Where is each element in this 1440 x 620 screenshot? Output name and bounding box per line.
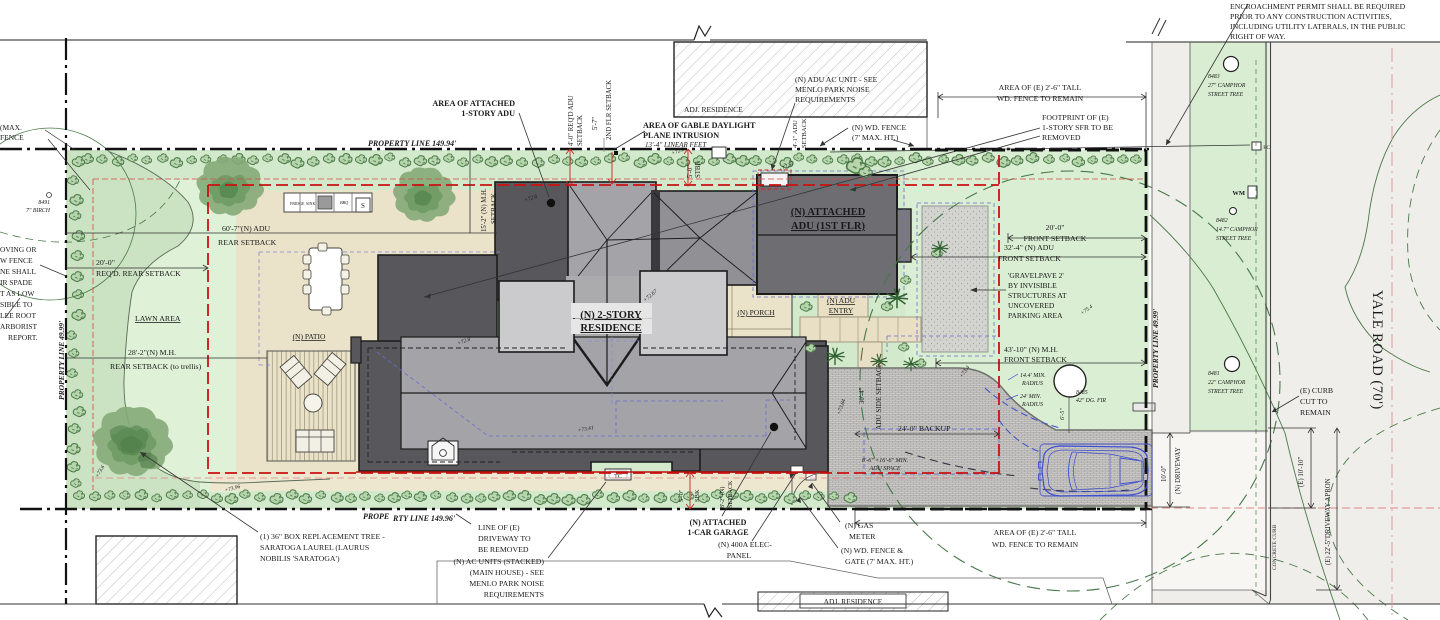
- svg-text:LEE ROOT: LEE ROOT: [0, 311, 36, 320]
- svg-text:RESIDENCE: RESIDENCE: [580, 323, 641, 334]
- svg-text:6'-5": 6'-5": [1060, 408, 1066, 420]
- svg-text:METER: METER: [849, 532, 876, 541]
- svg-text:PLANE INTRUSION: PLANE INTRUSION: [643, 131, 719, 140]
- svg-text:(N) ADU: (N) ADU: [827, 296, 856, 305]
- svg-text:4'-0" REQ'D ADU: 4'-0" REQ'D ADU: [568, 95, 575, 146]
- svg-text:(1) 36" BOX REPLACEMENT TREE: (1) 36" BOX REPLACEMENT TREE -: [260, 532, 385, 541]
- svg-text:(N) 2-STORY: (N) 2-STORY: [580, 310, 642, 321]
- svg-text:24'-0" BACKUP: 24'-0" BACKUP: [898, 424, 951, 433]
- svg-text:(N) ATTACHED: (N) ATTACHED: [791, 207, 866, 218]
- svg-text:SETBACK: SETBACK: [728, 480, 734, 508]
- svg-text:REMOVED: REMOVED: [1042, 133, 1081, 142]
- svg-text:1-STORY SFR TO BE: 1-STORY SFR TO BE: [1042, 123, 1113, 132]
- svg-text:PROPERTY LINE 49.99': PROPERTY LINE 49.99': [1151, 309, 1160, 388]
- svg-text:T AS LOW: T AS LOW: [0, 289, 35, 298]
- svg-text:MENLO PARK NOISE: MENLO PARK NOISE: [795, 85, 870, 94]
- svg-text:(MAX.: (MAX.: [0, 123, 22, 132]
- svg-text:GATE (7' MAX. HT.): GATE (7' MAX. HT.): [845, 557, 914, 566]
- svg-text:8'-6" ×16'-6" MIN.: 8'-6" ×16'-6" MIN.: [862, 458, 908, 464]
- svg-text:(N) DRIVEWAY: (N) DRIVEWAY: [1175, 447, 1182, 494]
- svg-text:BY INVISIBLE: BY INVISIBLE: [1008, 281, 1057, 290]
- svg-text:(N) PORCH: (N) PORCH: [737, 308, 775, 317]
- svg-text:AREA OF ATTACHED: AREA OF ATTACHED: [432, 99, 515, 108]
- svg-text:ADU SPACE: ADU SPACE: [868, 466, 900, 472]
- svg-text:RADIUS: RADIUS: [1021, 402, 1043, 408]
- svg-text:(N) GAS: (N) GAS: [845, 521, 873, 530]
- svg-text:27" CAMPHOR: 27" CAMPHOR: [1208, 83, 1246, 89]
- svg-text:STBR: STBR: [695, 161, 702, 178]
- svg-text:42" DG. FIR: 42" DG. FIR: [1076, 397, 1106, 404]
- svg-text:ARBORIST: ARBORIST: [0, 322, 38, 331]
- svg-text:SETBACK: SETBACK: [491, 193, 498, 224]
- svg-text:24' MIN.: 24' MIN.: [1020, 393, 1041, 400]
- svg-text:PRIOR TO ANY CONSTRUCTION ACTI: PRIOR TO ANY CONSTRUCTION ACTIVITIES,: [1230, 12, 1392, 21]
- svg-text:WD. FENCE TO REMAIN: WD. FENCE TO REMAIN: [997, 94, 1084, 103]
- svg-text:28'-2"(N) M.H.: 28'-2"(N) M.H.: [128, 348, 176, 357]
- svg-text:REMAIN: REMAIN: [1300, 408, 1331, 417]
- svg-text:PANEL: PANEL: [727, 551, 752, 560]
- svg-text:REQ'D. REAR SETBACK: REQ'D. REAR SETBACK: [96, 269, 181, 278]
- svg-text:13'-4" LINEAR FEET: 13'-4" LINEAR FEET: [645, 141, 707, 149]
- svg-text:SETBACK: SETBACK: [801, 118, 808, 148]
- svg-text:REQUIREMENTS: REQUIREMENTS: [795, 95, 855, 104]
- svg-text:8482: 8482: [1216, 217, 1228, 224]
- svg-text:REPORT.: REPORT.: [8, 333, 38, 342]
- svg-text:DRIVEWAY TO: DRIVEWAY TO: [478, 534, 531, 543]
- svg-text:(E) 22'-5"DRIVEWAY APRON: (E) 22'-5"DRIVEWAY APRON: [1325, 478, 1332, 565]
- svg-text:ADU SIDE SETBACK: ADU SIDE SETBACK: [875, 361, 883, 430]
- svg-text:1-STORY ADU: 1-STORY ADU: [461, 109, 515, 118]
- svg-text:FRONT SETBACK: FRONT SETBACK: [1004, 355, 1067, 364]
- svg-text:RTY LINE 149.96': RTY LINE 149.96': [392, 514, 456, 523]
- svg-text:14.4' MIN.: 14.4' MIN.: [1020, 372, 1046, 379]
- svg-text:IR SPADE: IR SPADE: [0, 278, 33, 287]
- svg-text:(7' MAX. HT.): (7' MAX. HT.): [852, 133, 899, 142]
- svg-text:30'-4": 30'-4": [859, 387, 866, 404]
- svg-text:FENCE: FENCE: [0, 133, 24, 142]
- svg-text:STREET TREE: STREET TREE: [1216, 236, 1252, 242]
- svg-text:SARATOGA LAUREL (LAURUS: SARATOGA LAUREL (LAURUS: [260, 543, 369, 552]
- svg-text:15'-2" (N) M.H.: 15'-2" (N) M.H.: [481, 188, 488, 232]
- svg-text:AREA OF GABLE DAYLIGHT: AREA OF GABLE DAYLIGHT: [643, 121, 756, 130]
- svg-text:CONCRETE CURB: CONCRETE CURB: [1272, 524, 1278, 570]
- svg-text:ADU (1ST FLR): ADU (1ST FLR): [791, 221, 865, 232]
- svg-text:WM: WM: [1232, 190, 1245, 197]
- svg-text:S: S: [361, 202, 365, 210]
- svg-text:PROPE: PROPE: [363, 512, 389, 521]
- svg-text:LAWN AREA: LAWN AREA: [135, 314, 181, 323]
- svg-text:2ND FLR SETBACK: 2ND FLR SETBACK: [606, 80, 613, 140]
- svg-text:1-CAR GARAGE: 1-CAR GARAGE: [687, 528, 748, 537]
- svg-text:CUT TO: CUT TO: [1300, 397, 1328, 406]
- svg-text:PARKING AREA: PARKING AREA: [1008, 311, 1063, 320]
- svg-text:AREA OF (E) 2'-6" TALL: AREA OF (E) 2'-6" TALL: [994, 528, 1077, 537]
- svg-text:TC: TC: [614, 474, 622, 480]
- svg-text:FOOTPRINT OF (E): FOOTPRINT OF (E): [1042, 113, 1109, 122]
- svg-text:FC: FC: [1263, 145, 1270, 151]
- svg-text:NE SHALL: NE SHALL: [0, 267, 36, 276]
- svg-text:(N) ADU AC UNIT - SEE: (N) ADU AC UNIT - SEE: [795, 75, 878, 84]
- svg-text:PROPERTY LINE 49.99': PROPERTY LINE 49.99': [57, 321, 66, 400]
- svg-text:60'-7"(N) ADU: 60'-7"(N) ADU: [222, 224, 270, 233]
- svg-text:'GRAVELPAVE 2': 'GRAVELPAVE 2': [1008, 271, 1064, 280]
- svg-text:BE REMOVED: BE REMOVED: [478, 545, 529, 554]
- svg-text:STREET TREE: STREET TREE: [1208, 92, 1244, 98]
- svg-text:ENCROACHMENT PERMIT SHALL BE: ENCROACHMENT PERMIT SHALL BE REQUIRED: [1230, 2, 1406, 11]
- svg-text:(N) 400A ELEC-: (N) 400A ELEC-: [718, 540, 772, 549]
- svg-text:W FENCE: W FENCE: [0, 256, 33, 265]
- svg-text:8485: 8485: [1076, 389, 1088, 396]
- svg-text:ADJ. RESIDENCE: ADJ. RESIDENCE: [824, 597, 883, 606]
- svg-text:AREA OF (E) 2'-6" TALL: AREA OF (E) 2'-6" TALL: [999, 83, 1082, 92]
- svg-text:(MAIN HOUSE) - SEE: (MAIN HOUSE) - SEE: [470, 568, 545, 577]
- svg-text:(N) PATIO: (N) PATIO: [293, 332, 326, 341]
- svg-text:INCLUDING UTILITY LATERALS, IN: INCLUDING UTILITY LATERALS, IN THE PUBLI…: [1230, 22, 1405, 31]
- svg-text:REAR SETBACK: REAR SETBACK: [218, 238, 277, 247]
- svg-text:(N) AC UNITS (STACKED): (N) AC UNITS (STACKED): [453, 557, 544, 566]
- svg-text:(E) CURB: (E) CURB: [1300, 386, 1333, 395]
- svg-text:RIGHT OF WAY.: RIGHT OF WAY.: [1230, 32, 1285, 41]
- svg-text:LINE OF (E): LINE OF (E): [478, 523, 520, 532]
- svg-text:10'-0": 10'-0": [1161, 465, 1168, 482]
- svg-text:(N) ATTACHED: (N) ATTACHED: [690, 518, 747, 527]
- svg-text:NOBILIS 'SARATOGA'): NOBILIS 'SARATOGA'): [260, 554, 340, 563]
- svg-text:20'-0": 20'-0": [1046, 223, 1065, 232]
- svg-text:STRUCTURES AT: STRUCTURES AT: [1008, 291, 1067, 300]
- svg-text:REAR SETBACK (to trellis): REAR SETBACK (to trellis): [110, 362, 202, 371]
- svg-text:14.7" CAMPHOR: 14.7" CAMPHOR: [1216, 226, 1258, 233]
- svg-text:PROPERTY LINE 149.94': PROPERTY LINE 149.94': [368, 139, 457, 148]
- svg-text:4'-1" ADU: 4'-1" ADU: [792, 120, 799, 148]
- svg-text:22" CAMPHOR: 22" CAMPHOR: [1208, 380, 1246, 386]
- svg-text:SETBACK: SETBACK: [577, 115, 584, 146]
- svg-text:5'-0": 5'-0": [678, 489, 685, 502]
- svg-text:REQUIREMENTS: REQUIREMENTS: [484, 590, 544, 599]
- svg-text:WD. FENCE TO REMAIN: WD. FENCE TO REMAIN: [992, 540, 1079, 549]
- svg-text:UNCOVERED: UNCOVERED: [1008, 301, 1055, 310]
- svg-text:43'-10" (N) M.H.: 43'-10" (N) M.H.: [1004, 345, 1058, 354]
- svg-text:5'-7": 5'-7": [592, 117, 599, 130]
- svg-text:ENTRY: ENTRY: [829, 306, 854, 315]
- svg-text:OVING OR: OVING OR: [0, 245, 36, 254]
- svg-text:(N) WD. FENCE: (N) WD. FENCE: [852, 123, 906, 132]
- svg-text:STREET TREE: STREET TREE: [1208, 389, 1244, 395]
- svg-text:BBQ: BBQ: [340, 200, 348, 205]
- svg-text:32'-4" (N) ADU: 32'-4" (N) ADU: [1004, 243, 1054, 252]
- svg-text:SIBLE TO: SIBLE TO: [0, 300, 33, 309]
- svg-text:8481: 8481: [1208, 370, 1220, 377]
- svg-text:FRONT SETBACK: FRONT SETBACK: [998, 254, 1061, 263]
- svg-text:5'-0": 5'-0": [687, 165, 694, 178]
- svg-text:FRIDGE: FRIDGE: [290, 201, 305, 206]
- svg-text:SINK: SINK: [306, 201, 315, 206]
- svg-text:ADJ. RESIDENCE: ADJ. RESIDENCE: [684, 105, 743, 114]
- svg-text:MENLO PARK NOISE: MENLO PARK NOISE: [469, 579, 544, 588]
- svg-text:8483: 8483: [1208, 73, 1220, 80]
- svg-text:(N) WD. FENCE &: (N) WD. FENCE &: [841, 546, 903, 555]
- svg-text:8'-2" (N): 8'-2" (N): [719, 487, 726, 508]
- svg-text:7" BIRCH: 7" BIRCH: [26, 208, 51, 214]
- svg-text:RADIUS: RADIUS: [1021, 381, 1043, 387]
- svg-text:(E) 10'-10": (E) 10'-10": [1298, 457, 1305, 487]
- svg-text:SBK: SBK: [694, 489, 701, 502]
- svg-text:YALE ROAD (70'): YALE ROAD (70'): [1369, 290, 1385, 410]
- svg-text:FRONT SETBACK: FRONT SETBACK: [1024, 234, 1087, 243]
- svg-text:8491: 8491: [38, 199, 50, 206]
- svg-text:20'-0": 20'-0": [96, 258, 115, 267]
